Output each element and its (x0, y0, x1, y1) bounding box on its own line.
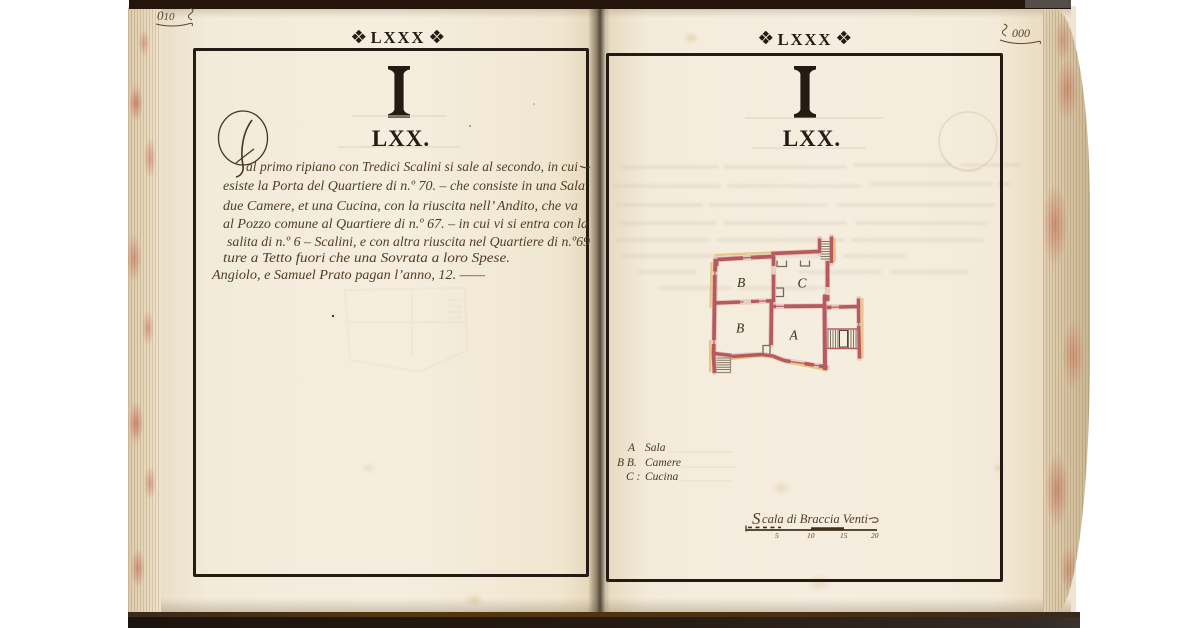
svg-text:al Pozzo comune al Quartiere d: al Pozzo comune al Quartiere di n.º 67. … (223, 217, 588, 232)
svg-text:000: 000 (1012, 26, 1030, 40)
svg-text:esiste la Porta del Quartiere: esiste la Porta del Quartiere di n.º 70.… (223, 179, 585, 194)
svg-text:Angiolo, e Samuel Prato pagan: Angiolo, e Samuel Prato pagan l’anno, 12… (211, 268, 486, 283)
svg-text:ture a Tetto fuori che una Sov: ture a Tetto fuori che una Sovrata a lor… (223, 251, 510, 266)
svg-text:al primo ripiano con Tredici S: al primo ripiano con Tredici Scalini si … (246, 160, 578, 175)
svg-text:due Camere, et una Cucina, con: due Camere, et una Cucina, con la riusci… (223, 199, 578, 214)
svg-text:salita di n.º 6 – Scalini, e c: salita di n.º 6 – Scalini, e con altra r… (227, 235, 590, 250)
